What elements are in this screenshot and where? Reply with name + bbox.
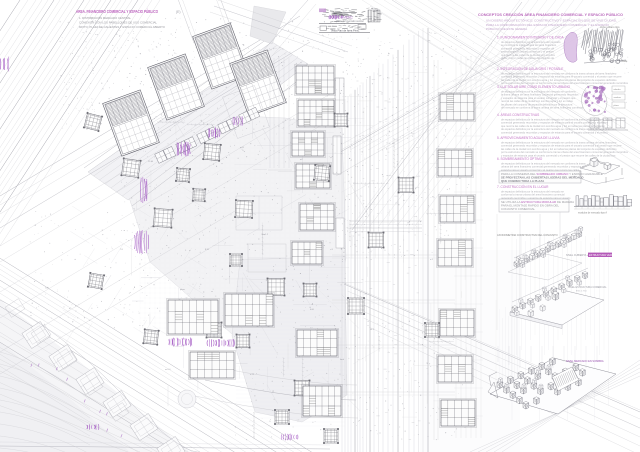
svg-text:CONCEPTOS CREACIÓN ÁREA FINANC: CONCEPTOS CREACIÓN ÁREA FINANCIERO COMER…	[478, 12, 623, 17]
svg-text:arboles: arboles	[614, 88, 622, 91]
svg-text:ESC 1:750: ESC 1:750	[576, 290, 587, 292]
svg-text:PARA LA CONFORMACIÓN DEL ESPAC: PARA LA CONFORMACIÓN DEL ESPACIO FINANCI…	[486, 22, 610, 27]
svg-text:nv 0.0: nv 0.0	[165, 369, 171, 371]
svg-text:nv+1.2: nv+1.2	[262, 234, 269, 236]
svg-text:6. SOMBREAMIENTO ÓPTIMO: 6. SOMBREAMIENTO ÓPTIMO	[497, 156, 543, 161]
svg-text:del mercado se conforma la tra: del mercado se conforma la trama urbana …	[501, 106, 583, 110]
svg-text:Vista Plan de Area Princ.: Vista Plan de Area Princ.	[331, 29, 360, 33]
svg-text:AREA. FINANCIERO COMERCIAL Y E: AREA. FINANCIERO COMERCIAL Y ESPACIO PÚB…	[76, 9, 158, 14]
svg-text:CONJUNTO COMERCIAL: CONJUNTO COMERCIAL	[501, 207, 535, 211]
svg-text:plaza: plaza	[614, 105, 620, 107]
svg-text:5. APROVECHAMIENTO AGUA DE LLU: 5. APROVECHAMIENTO AGUA DE LLUVIA	[497, 136, 560, 140]
svg-text:3. LUZ SOLAR AIRE COMO ELEMENT: 3. LUZ SOLAR AIRE COMO ELEMENTO URBANO	[497, 85, 571, 89]
svg-text:MIXTO, PLAZA DE CALIENTES Y ES: MIXTO, PLAZA DE CALIENTES Y ESPACIO COME…	[79, 25, 166, 29]
svg-text:CIUDAD+MERC: CIUDAD+MERC	[328, 16, 354, 20]
svg-text:NIVEL MERCADO EN SOMBRA: NIVEL MERCADO EN SOMBRA	[566, 359, 604, 363]
svg-text:12.40: 12.40	[148, 161, 154, 163]
svg-text:calle: calle	[622, 59, 628, 63]
svg-text:2. INTEGRACIÓN DE AGUA GRIS /: 2. INTEGRACIÓN DE AGUA GRIS / POTABLE	[497, 66, 563, 71]
svg-text:corte urbano tipo: corte urbano tipo	[600, 25, 620, 29]
svg-text:1. DISTRIBUCIÓN MERCADO CENTRA: 1. DISTRIBUCIÓN MERCADO CENTRAL	[79, 15, 132, 20]
svg-text:NIVEL CUBIERTA +: NIVEL CUBIERTA +	[566, 254, 589, 257]
svg-text:plaza del mercado central: plaza del mercado central	[336, 20, 364, 23]
svg-text:(E): (E)	[176, 10, 181, 14]
svg-text:7. CONSTRUCCIÓN EN EL LUGAR: 7. CONSTRUCCIÓN EN EL LUGAR	[497, 184, 549, 189]
svg-text:1. FUNCIONAMIENTO INTERIOR Y D: 1. FUNCIONAMIENTO INTERIOR Y DE CADA	[497, 36, 564, 40]
svg-text:PÚBLICO QUE ESTE GENERA: PÚBLICO QUE ESTE GENERA	[486, 27, 527, 31]
svg-text:ESTRUCTURA VERDE: ESTRUCTURA VERDE	[589, 254, 616, 257]
svg-text:4. ÁREAS CONSTRUCTIVAS: 4. ÁREAS CONSTRUCTIVAS	[497, 113, 539, 117]
svg-text:QUE CUBREN TODA LA PLAZA: QUE CUBREN TODA LA PLAZA	[501, 179, 545, 183]
svg-text:CONEXIÓN CON LOS PABELLONES DE: CONEXIÓN CON LOS PABELLONES DE USO COMER…	[79, 20, 157, 25]
svg-text:AXONOMETRIA CONSTRUCTIVA DEL C: AXONOMETRIA CONSTRUCTIVA DEL CONJUNTO	[497, 233, 558, 237]
svg-text:modulos de mercado tipo A: modulos de mercado tipo A	[578, 212, 607, 215]
svg-text:NIVEL ESTRUCTURA COMERCIAL: NIVEL ESTRUCTURA COMERCIAL	[568, 286, 607, 289]
svg-text:sombra: sombra	[614, 96, 622, 99]
svg-text:UN DISEÑO ARQUITECTÓNICO, CONS: UN DISEÑO ARQUITECTÓNICO, CONSTRUCTIVO Y…	[486, 18, 617, 23]
svg-text:agua y luz en todas las plazas: agua y luz en todas las plazas del conju…	[501, 56, 555, 60]
svg-text:comercial generando recorridos: comercial generando recorridos y espacio…	[501, 130, 608, 134]
svg-text:local: local	[340, 359, 345, 361]
